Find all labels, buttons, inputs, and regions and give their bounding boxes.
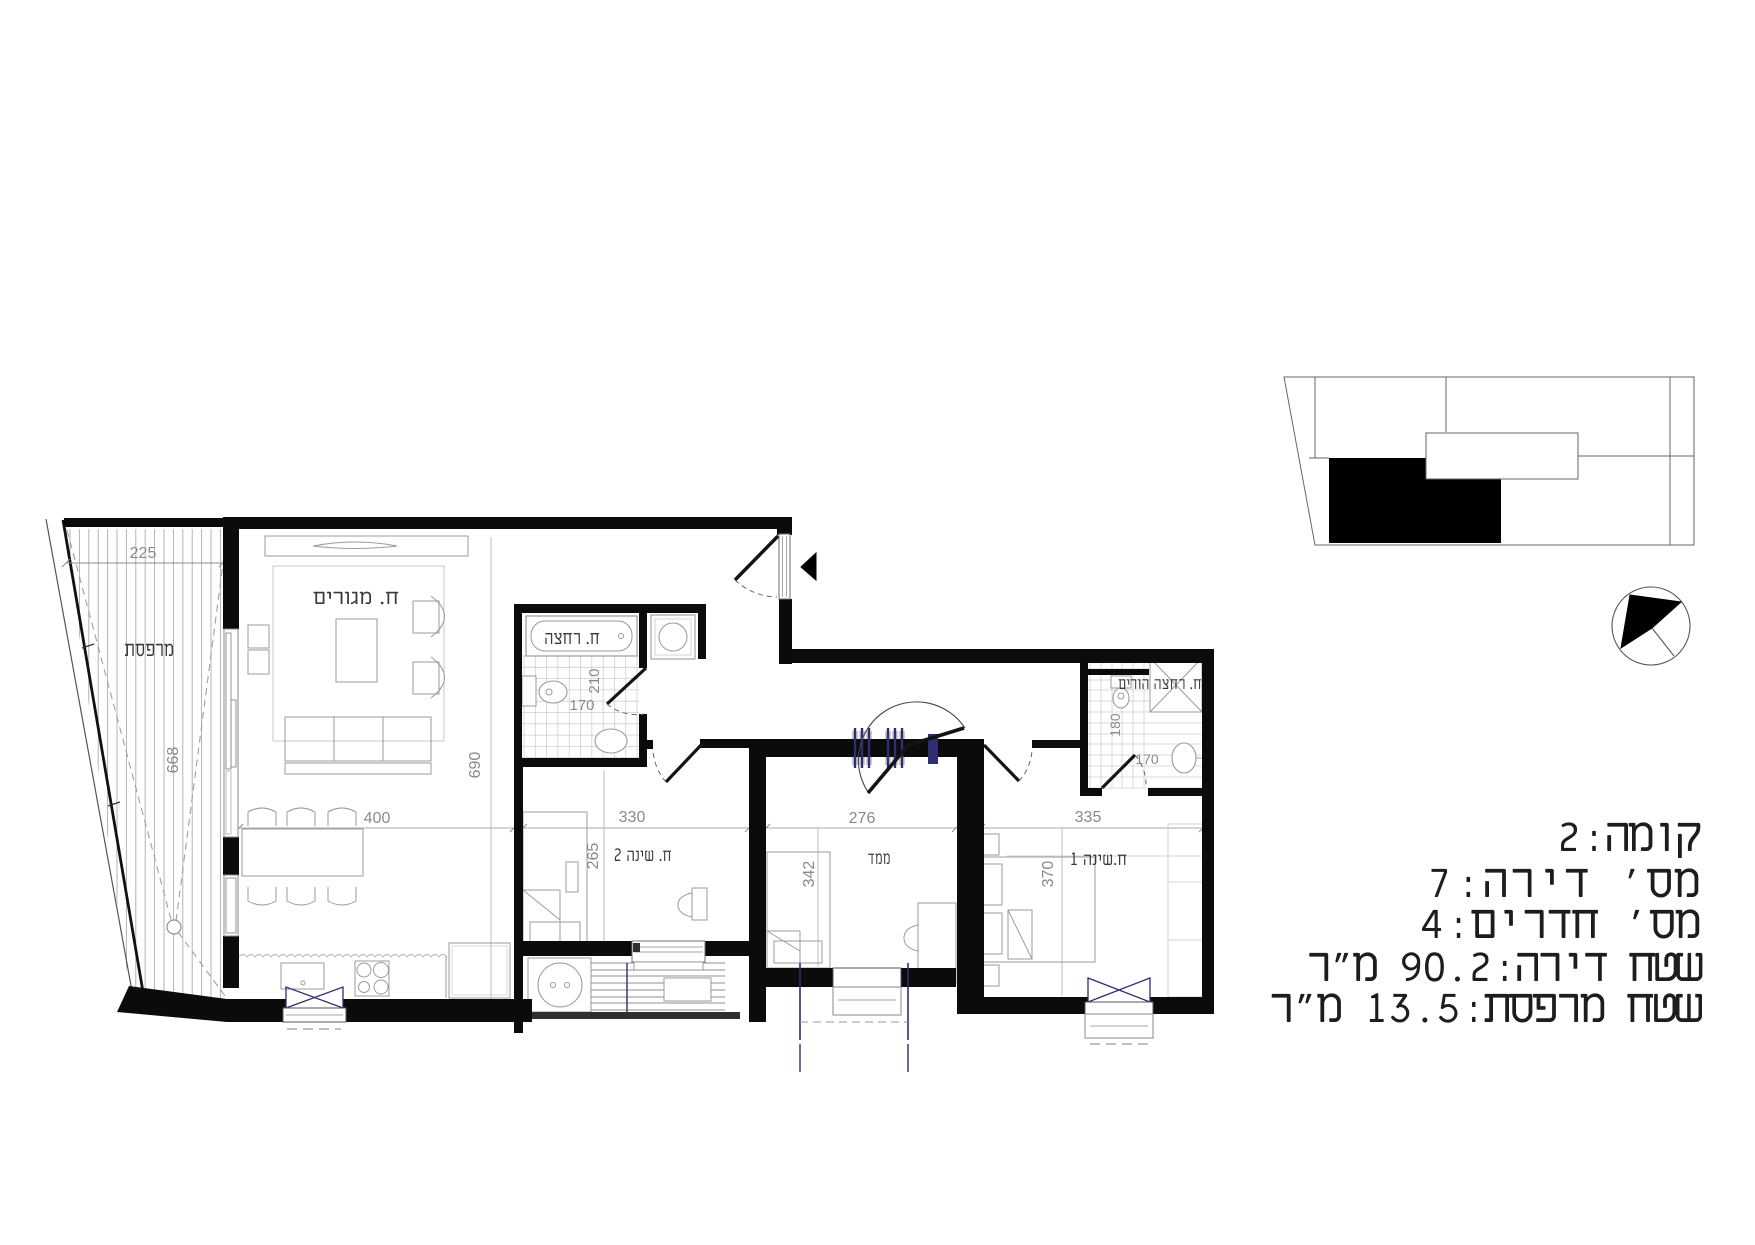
svg-text:210: 210 <box>586 668 603 693</box>
svg-text:335: 335 <box>1075 809 1102 826</box>
svg-text:276: 276 <box>849 810 876 827</box>
svg-text:180: 180 <box>1107 713 1123 737</box>
svg-text:370: 370 <box>1040 861 1057 888</box>
svg-text:400: 400 <box>364 810 391 827</box>
svg-text:690: 690 <box>467 752 484 779</box>
svg-text:330: 330 <box>619 809 646 826</box>
svg-text:170: 170 <box>569 697 594 714</box>
svg-text:225: 225 <box>130 545 157 562</box>
svg-text:668: 668 <box>165 747 182 774</box>
svg-text:342: 342 <box>801 861 818 888</box>
svg-text:265: 265 <box>585 843 602 870</box>
svg-text:170: 170 <box>1135 751 1159 767</box>
